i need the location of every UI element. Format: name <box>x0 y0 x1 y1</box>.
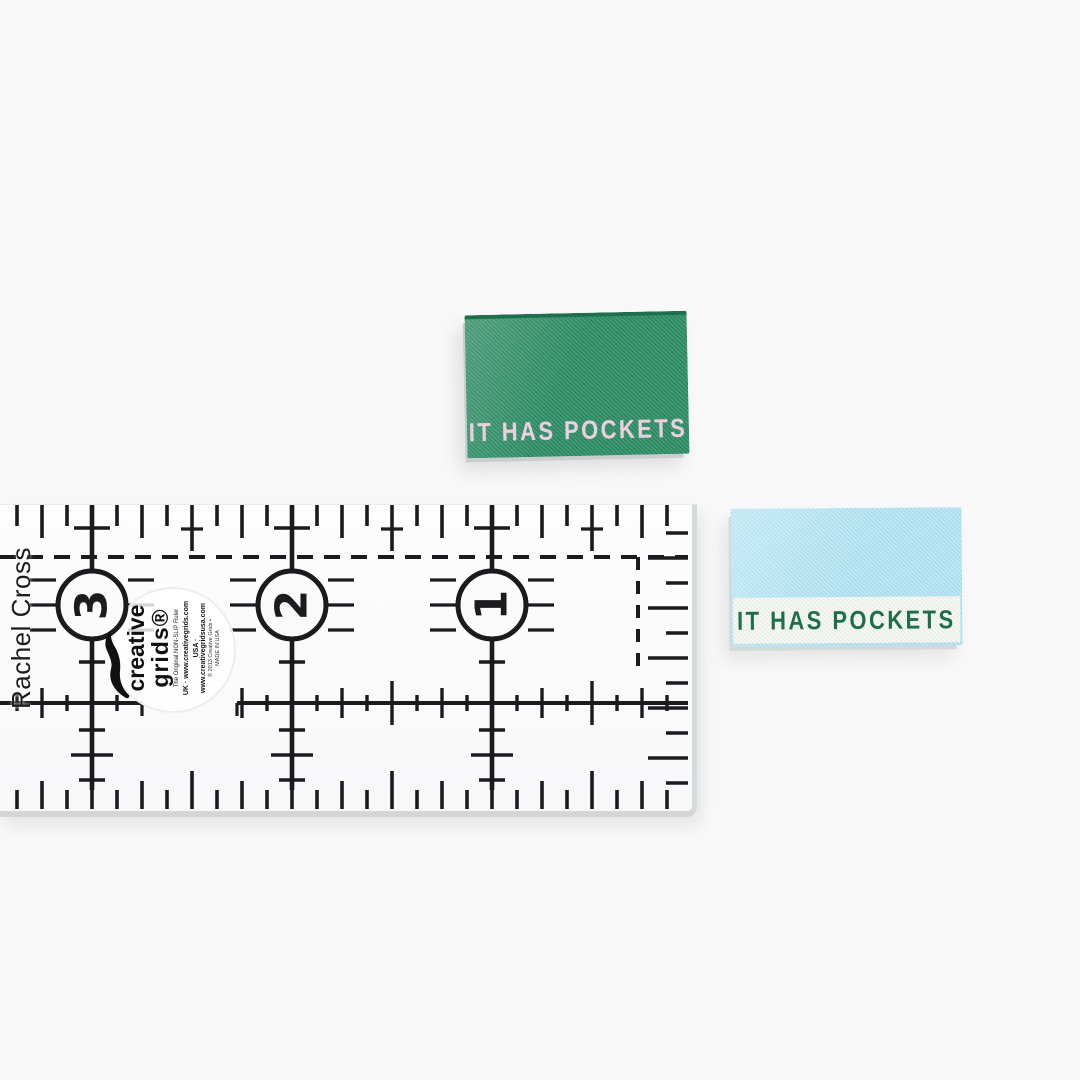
blue-label-text: IT HAS POCKETS <box>737 604 956 637</box>
brand-url-uk: UK · www.creativegrids.com <box>183 601 190 695</box>
woven-label-green: IT HAS POCKETS <box>465 311 690 459</box>
brand-name-line2: grids® <box>149 608 172 687</box>
brand-logo-block: creative grids® The Original NON-SLIP Ru… <box>105 596 241 700</box>
hare-logo-icon <box>105 628 131 700</box>
ruler-markings: 3 2 1 <box>0 505 692 811</box>
brand-url-usa: USA · www.creativegridsusa.com <box>193 596 207 700</box>
product-photo: 3 2 1 creative grids® The Original NON-S… <box>0 0 1080 1080</box>
inch-number-2: 2 <box>267 590 318 621</box>
green-label-text: IT HAS POCKETS <box>468 413 687 449</box>
photographer-watermark: Rachel Cross <box>6 543 38 713</box>
brand-copyright: © 2013 Creative Grids • <box>209 619 215 677</box>
blue-label-text-band: IT HAS POCKETS <box>733 596 960 644</box>
brand-tagline: The Original NON-SLIP Ruler <box>174 609 180 688</box>
quilting-ruler: 3 2 1 creative grids® The Original NON-S… <box>0 504 697 817</box>
brand-made-in: MADE IN USA <box>216 630 222 666</box>
inch-number-1: 1 <box>467 590 518 621</box>
woven-label-blue: IT HAS POCKETS <box>731 507 963 647</box>
